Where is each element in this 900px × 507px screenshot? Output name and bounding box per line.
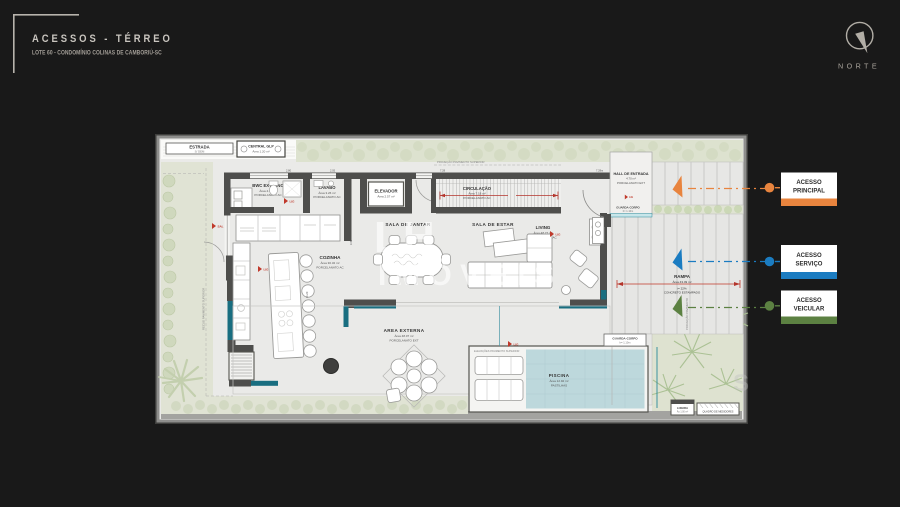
- svg-text:LH: LH: [374, 213, 437, 262]
- svg-text:CONCRETO ESTAMPADO: CONCRETO ESTAMPADO: [664, 291, 701, 295]
- svg-text:PISCINA: PISCINA: [549, 373, 570, 378]
- svg-text:PRINCIPAL: PRINCIPAL: [793, 189, 825, 195]
- svg-text:Áu 1.00 m²: Áu 1.00 m²: [677, 411, 688, 414]
- svg-text:LIG: LIG: [556, 233, 562, 237]
- svg-text:ACESSO: ACESSO: [796, 180, 822, 186]
- svg-text:PORCELANATO EXT: PORCELANATO EXT: [617, 181, 645, 185]
- svg-text:11.20: 11.20: [305, 291, 309, 298]
- svg-text:PORCELANATO AC: PORCELANATO AC: [254, 193, 282, 197]
- svg-text:VEICULAR: VEICULAR: [794, 307, 825, 313]
- svg-text:ACESSOS - TÉRREO: ACESSOS - TÉRREO: [32, 31, 173, 45]
- svg-text:Área 1.20 m²: Área 1.20 m²: [252, 150, 269, 154]
- svg-text:4.70 m²: 4.70 m²: [626, 177, 636, 181]
- svg-text:AREA EXTERNA: AREA EXTERNA: [384, 328, 425, 333]
- svg-text:3.45: 3.45: [349, 239, 353, 245]
- svg-text:LIG: LIG: [629, 196, 633, 199]
- svg-text:LIVING: LIVING: [536, 225, 551, 230]
- svg-text:IMÓVEIS: IMÓVEIS: [378, 258, 563, 292]
- svg-text:LIG: LIG: [290, 200, 296, 204]
- svg-text:RECUO PAVIMENTO SUPERIOR: RECUO PAVIMENTO SUPERIOR: [202, 288, 206, 330]
- svg-text:ELEVADOR: ELEVADOR: [375, 189, 398, 194]
- svg-text:Área 12.92 m²: Área 12.92 m²: [549, 379, 568, 383]
- svg-text:2.05: 2.05: [330, 169, 336, 173]
- svg-text:PORCELANATO EXT: PORCELANATO EXT: [389, 339, 418, 343]
- svg-text:PROJEÇÃO PAVIMENTO SUPERIOR: PROJEÇÃO PAVIMENTO SUPERIOR: [437, 159, 485, 164]
- svg-text:PORCELANATO AC: PORCELANATO AC: [463, 196, 491, 200]
- svg-text:Área 30.32 m²: Área 30.32 m²: [320, 261, 339, 265]
- svg-text:2.80: 2.80: [286, 169, 292, 173]
- svg-text:S: S: [733, 370, 749, 397]
- svg-text:LIG: LIG: [264, 268, 270, 272]
- svg-text:h= 1.10m: h= 1.10m: [623, 210, 634, 213]
- svg-text:LIXEIRA: LIXEIRA: [677, 406, 688, 410]
- svg-text:PROJEÇÃO PAVIMENTO: PROJEÇÃO PAVIMENTO: [684, 297, 689, 330]
- svg-text:ACESSO: ACESSO: [796, 298, 822, 304]
- svg-text:CENTRAL GLP: CENTRAL GLP: [248, 145, 274, 149]
- svg-text:BWC EXTERNO: BWC EXTERNO: [252, 183, 284, 188]
- svg-text:QUADRO DE MEDIDORES: QUADRO DE MEDIDORES: [703, 411, 734, 414]
- svg-text:COZINHA: COZINHA: [320, 255, 342, 260]
- svg-text:Área 48.07 m²: Área 48.07 m²: [394, 334, 413, 338]
- svg-text:7.28m: 7.28m: [596, 169, 603, 173]
- svg-text:Área 43.49 m²: Área 43.49 m²: [672, 280, 691, 284]
- svg-text:RAMPA: RAMPA: [674, 274, 691, 279]
- svg-text:NORTE: NORTE: [838, 62, 880, 71]
- svg-text:Área 2.57 m²: Área 2.57 m²: [377, 195, 394, 199]
- svg-text:PASTILHAS: PASTILHAS: [551, 384, 567, 388]
- svg-text:7.28: 7.28: [440, 169, 446, 173]
- svg-text:PORCELANATO AC: PORCELANATO AC: [313, 195, 341, 199]
- svg-text:SALA DE ESTAR: SALA DE ESTAR: [472, 222, 514, 227]
- svg-text:SAL: SAL: [218, 225, 224, 229]
- svg-text:CIRCULAÇÃO: CIRCULAÇÃO: [463, 186, 492, 191]
- svg-text:Área 7.18 m²: Área 7.18 m²: [468, 192, 485, 196]
- svg-text:LIG: LIG: [514, 343, 520, 347]
- svg-text:HALL DE ENTRADA: HALL DE ENTRADA: [614, 172, 649, 176]
- svg-text:SERVIÇO: SERVIÇO: [796, 262, 823, 268]
- svg-text:LOTE 60 - CONDOMÍNIO COLINAS D: LOTE 60 - CONDOMÍNIO COLINAS DE CAMBORIÚ…: [32, 48, 162, 57]
- svg-text:ACESSO: ACESSO: [796, 253, 822, 259]
- svg-text:h= 1.10m: h= 1.10m: [620, 341, 631, 345]
- svg-text:GUARDA-CORPO: GUARDA-CORPO: [612, 337, 638, 341]
- svg-text:PORCELANATO AC: PORCELANATO AC: [316, 266, 344, 270]
- svg-text:S/ DEM: S/ DEM: [195, 150, 205, 154]
